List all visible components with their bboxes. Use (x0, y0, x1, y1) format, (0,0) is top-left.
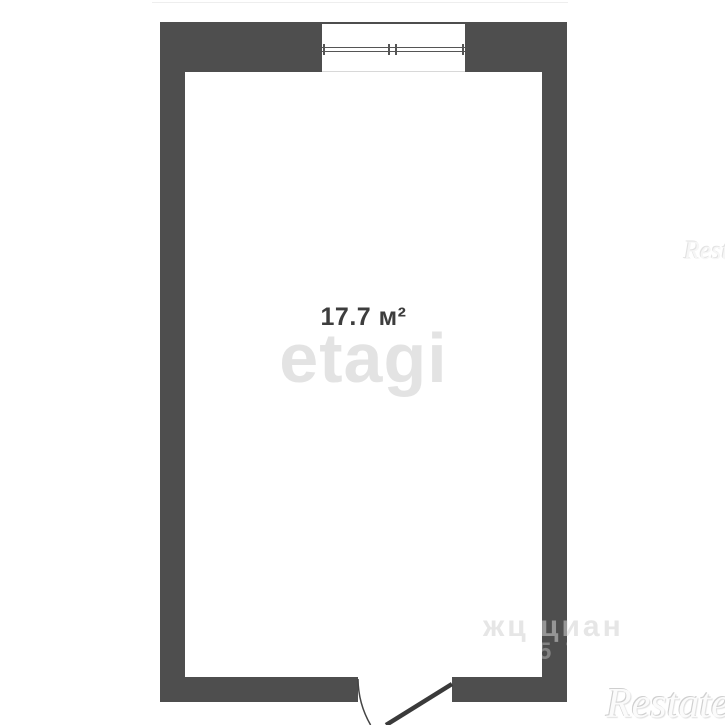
window-frame-tick (388, 44, 390, 55)
wall-left (160, 22, 185, 702)
door-leaf (386, 684, 452, 725)
paper-edge-line (152, 2, 568, 3)
wall-digits-watermark: 57 (538, 638, 593, 666)
etagi-watermark: etagi (185, 323, 542, 393)
window-frame-tick (395, 44, 397, 55)
wall-right (542, 22, 567, 702)
window-glass-line (322, 47, 465, 52)
window-frame-tick (462, 44, 464, 55)
restate-watermark-mid: Restate (684, 236, 725, 266)
floorplan-canvas: 17.7 м² etagi жц циан 57 Restate Restate (0, 0, 725, 725)
window-frame-tick (323, 44, 325, 55)
wall-bottom-right (452, 677, 567, 702)
door-swing-arc (358, 679, 371, 725)
window (322, 22, 465, 72)
wall-bottom-left (160, 677, 358, 702)
restate-watermark-bottom: Restate (606, 680, 725, 725)
